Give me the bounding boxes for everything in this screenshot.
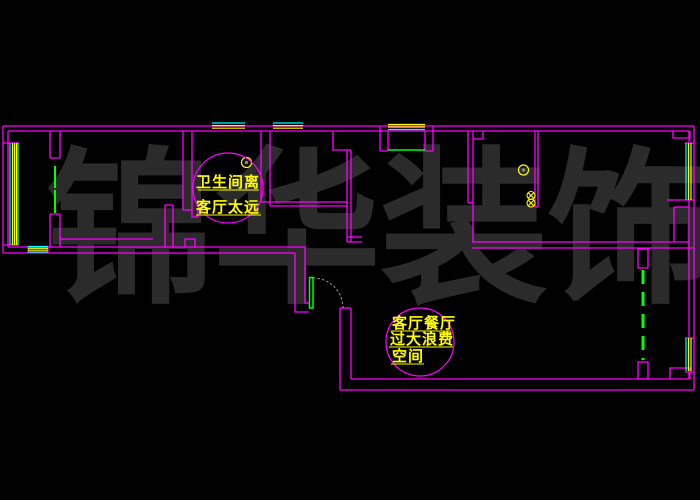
- floor-plan-drawing: 锦 华 装 饰: [0, 0, 700, 500]
- watermark-char-2: 华: [213, 139, 381, 325]
- cad-canvas[interactable]: 锦 华 装 饰: [0, 0, 700, 500]
- watermark-char-3: 装: [380, 139, 548, 325]
- annotation-text-line: 客厅太远: [195, 198, 260, 216]
- watermark-char-4: 饰: [547, 139, 700, 325]
- annotation-living-note: 客厅餐厅 过大浪费 空间: [386, 308, 456, 376]
- annotation-text-line: 客厅餐厅: [391, 314, 456, 332]
- watermark: 锦 华 装 饰: [46, 139, 700, 325]
- annotation-text-line: 空间: [392, 347, 424, 365]
- watermark-char-1: 锦: [46, 139, 214, 325]
- annotation-text-line: 过大浪费: [390, 330, 454, 348]
- annotation-text-line: 卫生间离: [196, 173, 260, 191]
